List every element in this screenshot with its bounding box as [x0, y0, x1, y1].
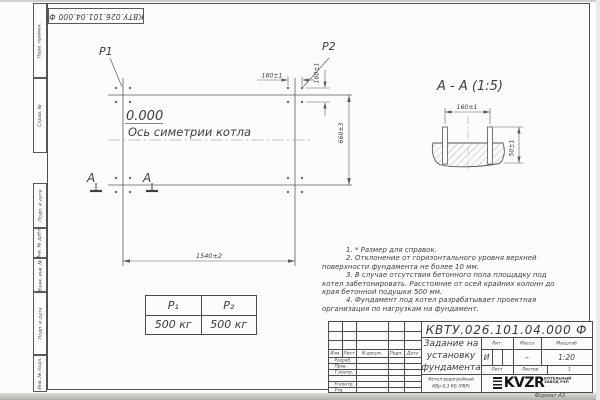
tb-role-tkontr: Т.контр.: [333, 370, 354, 374]
tb-role-prov: Пров.: [333, 364, 354, 368]
section-view-title: А - А (1:5): [436, 79, 503, 94]
tb-mass-value: –: [513, 351, 541, 363]
tb-line: [481, 349, 592, 350]
tb-title-line-2: установку: [421, 350, 481, 362]
section-letter-right: А: [142, 171, 151, 185]
note-1: 1. * Размер для справок.: [322, 246, 567, 254]
dim-660: 660±3: [338, 122, 345, 143]
tb-role-razrab: Разраб.: [333, 358, 354, 362]
tb-sheets-value: 1: [553, 366, 585, 372]
title-block: КВТУ.026.101.04.000 Ф Изм. Лист N докум.…: [328, 321, 593, 393]
tb-doc-number: КВТУ.026.101.04.000 Ф: [421, 322, 592, 337]
tb-line: [547, 365, 548, 374]
plan-dimension-lines: [123, 70, 349, 261]
load-table-value-p2: 500 кг: [201, 315, 257, 335]
tb-role-utv: Утв.: [333, 388, 354, 392]
dim-50-section: 50±1: [509, 140, 516, 157]
tb-lit-label: Лит.: [485, 340, 508, 346]
tb-title-line-3: фундамента: [421, 362, 481, 374]
tb-sheets-label: Листов: [518, 366, 542, 372]
dim-160-top: 160±1: [262, 73, 283, 80]
kvzr-logo-bars-icon: [493, 377, 502, 389]
section-letter-left: А: [86, 171, 95, 185]
tb-col-ndokum: N докум.: [360, 350, 383, 356]
dim-1540: 1540±2: [196, 252, 222, 260]
tb-lit-value: И: [481, 351, 492, 363]
tb-role-empty: [333, 376, 354, 380]
note-4: 4. Фундамент под котел разрабатывает про…: [322, 296, 567, 313]
load-label-p1: Р1: [99, 45, 113, 58]
tb-scale-value: 1:20: [541, 351, 592, 363]
tb-product-line-2: КВр-0,3 КБ (РВР): [429, 384, 472, 389]
tb-product-line-1: Котел водогрейный: [429, 377, 472, 382]
technical-notes: 1. * Размер для справок. 2. Отклонение о…: [322, 246, 567, 313]
dim-160-side: 160±1: [314, 63, 321, 84]
tb-line: [502, 349, 503, 365]
tb-mass-label: Масса: [517, 340, 537, 346]
tb-col-izm: Изм.: [331, 350, 340, 356]
format-label: Формат А3: [523, 392, 577, 398]
kvzr-sub-line-2: ЗАВОД РЭП: [544, 381, 571, 385]
tb-line: [492, 349, 493, 365]
load-label-p2: Р2: [322, 40, 336, 53]
load-table: Р₁ Р₂ 500 кг 500 кг: [145, 295, 257, 335]
tb-title-line-1: Задание на: [421, 338, 481, 350]
dim-160-section: 160±1: [457, 104, 478, 111]
tb-role-nkontr: Н.контр.: [333, 382, 354, 386]
note-3: 3. В случае отсутствия бетонного пола пл…: [322, 271, 567, 296]
kvzr-logo-text: KVZR: [503, 374, 545, 392]
tb-sheet-label: Лист: [485, 366, 508, 372]
tb-line: [329, 331, 421, 332]
plan-dimension-arrows: [123, 78, 351, 262]
axis-label: Ось симетрии котла: [128, 125, 251, 139]
tb-col-podp: Подп.: [390, 350, 402, 356]
tb-scale-label: Масштаб: [548, 340, 585, 346]
drawing-sheet: КВТУ.026.101.04.000 Ф Перв. примен. Спра…: [0, 0, 600, 400]
load-leader-lines: [110, 58, 329, 87]
kvzr-logo-subtitle: КОТЕЛЬНЫЙ ЗАВОД РЭП: [544, 377, 571, 384]
note-2: 2. Отклонение от горизонтального уровня …: [322, 254, 567, 271]
level-mark-0000: 0.000: [126, 109, 163, 124]
tb-line: [329, 340, 421, 341]
load-table-header-p1: Р₁: [146, 296, 202, 316]
tb-col-data: Дата: [406, 350, 418, 356]
load-table-header-p2: Р₂: [201, 296, 257, 316]
load-table-value-p1: 500 кг: [146, 315, 202, 335]
tb-col-list: Лист: [344, 350, 354, 356]
